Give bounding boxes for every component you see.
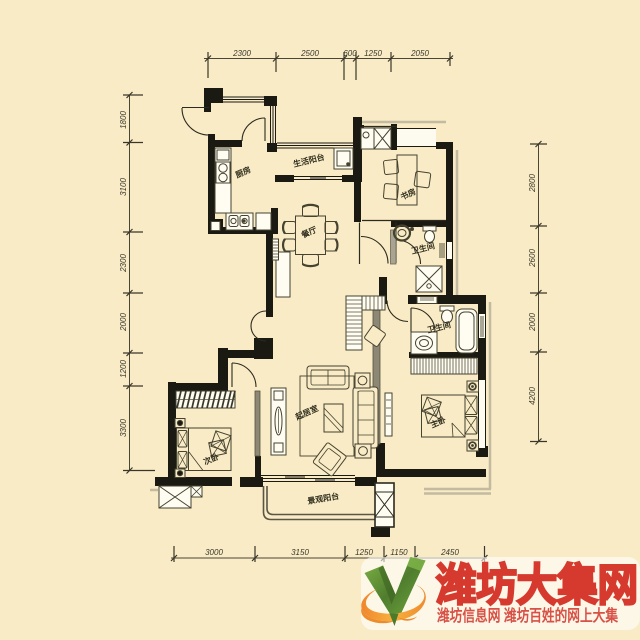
- svg-text:2050: 2050: [410, 49, 429, 58]
- svg-text:2300: 2300: [119, 254, 128, 273]
- svg-text:2450: 2450: [440, 548, 459, 557]
- svg-text:3000: 3000: [205, 548, 223, 557]
- svg-text:1800: 1800: [119, 111, 128, 129]
- svg-text:潍坊信息网 潍坊百姓的网上大集: 潍坊信息网 潍坊百姓的网上大集: [437, 606, 619, 625]
- svg-text:2300: 2300: [232, 49, 251, 58]
- svg-text:2000: 2000: [528, 313, 537, 332]
- svg-text:1150: 1150: [390, 548, 408, 557]
- svg-text:1250: 1250: [364, 49, 382, 58]
- svg-text:2800: 2800: [528, 174, 537, 193]
- svg-text:2500: 2500: [300, 49, 319, 58]
- svg-text:潍坊大集网: 潍坊大集网: [436, 561, 638, 610]
- svg-text:2000: 2000: [119, 313, 128, 332]
- svg-text:1200: 1200: [119, 360, 128, 378]
- svg-text:1250: 1250: [355, 548, 373, 557]
- svg-text:2600: 2600: [528, 249, 537, 268]
- svg-text:3100: 3100: [119, 178, 128, 196]
- svg-text:600: 600: [343, 49, 357, 58]
- svg-text:3300: 3300: [119, 419, 128, 437]
- svg-text:4200: 4200: [528, 387, 537, 405]
- svg-text:3150: 3150: [291, 548, 309, 557]
